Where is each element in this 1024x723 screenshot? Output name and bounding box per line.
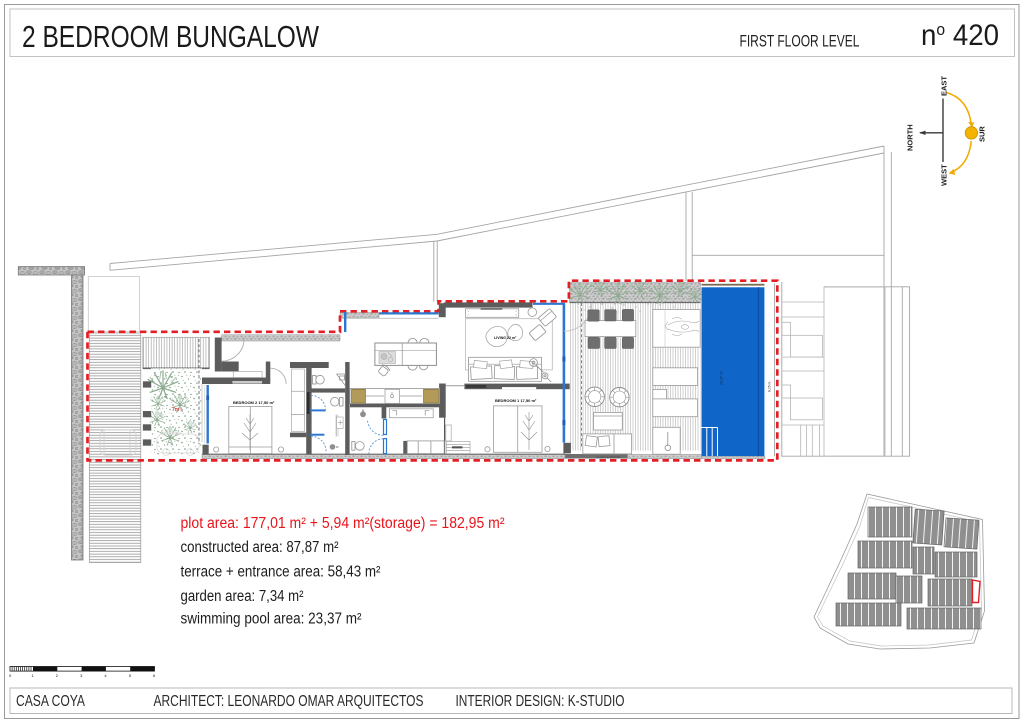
- svg-text:no 420: no 420: [921, 19, 999, 52]
- svg-text:terrace + entrance area: 58,43: terrace + entrance area: 58,43 m²: [181, 564, 381, 581]
- svg-text:EAST: EAST: [940, 76, 949, 96]
- svg-text:NORTH: NORTH: [906, 124, 915, 151]
- svg-text:plot area: 177,01 m² + 5,94 m²: plot area: 177,01 m² + 5,94 m²(storage) …: [181, 515, 505, 532]
- svg-text:garden area: 7,34 m²: garden area: 7,34 m²: [181, 588, 304, 605]
- svg-text:LIVING 22 m²: LIVING 22 m²: [494, 336, 517, 340]
- svg-text:2 BEDROOM BUNGALOW: 2 BEDROOM BUNGALOW: [22, 19, 320, 54]
- svg-text:23,37 m²: 23,37 m²: [720, 370, 724, 385]
- svg-text:FIRST FLOOR LEVEL: FIRST FLOOR LEVEL: [740, 33, 860, 51]
- svg-text:8,05 m: 8,05 m: [768, 381, 772, 392]
- svg-text:BEDROOM 1 17,50 m²: BEDROOM 1 17,50 m²: [495, 398, 537, 403]
- svg-text:WEST: WEST: [940, 164, 949, 186]
- svg-text:BEDROOM 2 17,50 m²: BEDROOM 2 17,50 m²: [233, 400, 275, 405]
- svg-text:constructed area: 87,87 m²: constructed area: 87,87 m²: [181, 539, 339, 556]
- svg-text:7m²: 7m²: [172, 407, 181, 413]
- svg-text:ARCHITECT: LEONARDO OMAR ARQUI: ARCHITECT: LEONARDO OMAR ARQUITECTOS: [154, 693, 424, 710]
- svg-text:CASA COYA: CASA COYA: [16, 693, 86, 710]
- svg-text:INTERIOR DESIGN: K-STUDIO: INTERIOR DESIGN: K-STUDIO: [456, 693, 625, 710]
- svg-text:swimming pool area: 23,37 m²: swimming pool area: 23,37 m²: [181, 611, 362, 628]
- svg-text:sunbed 2,00x0,60: sunbed 2,00x0,60: [596, 455, 620, 459]
- svg-text:SUR: SUR: [978, 126, 987, 142]
